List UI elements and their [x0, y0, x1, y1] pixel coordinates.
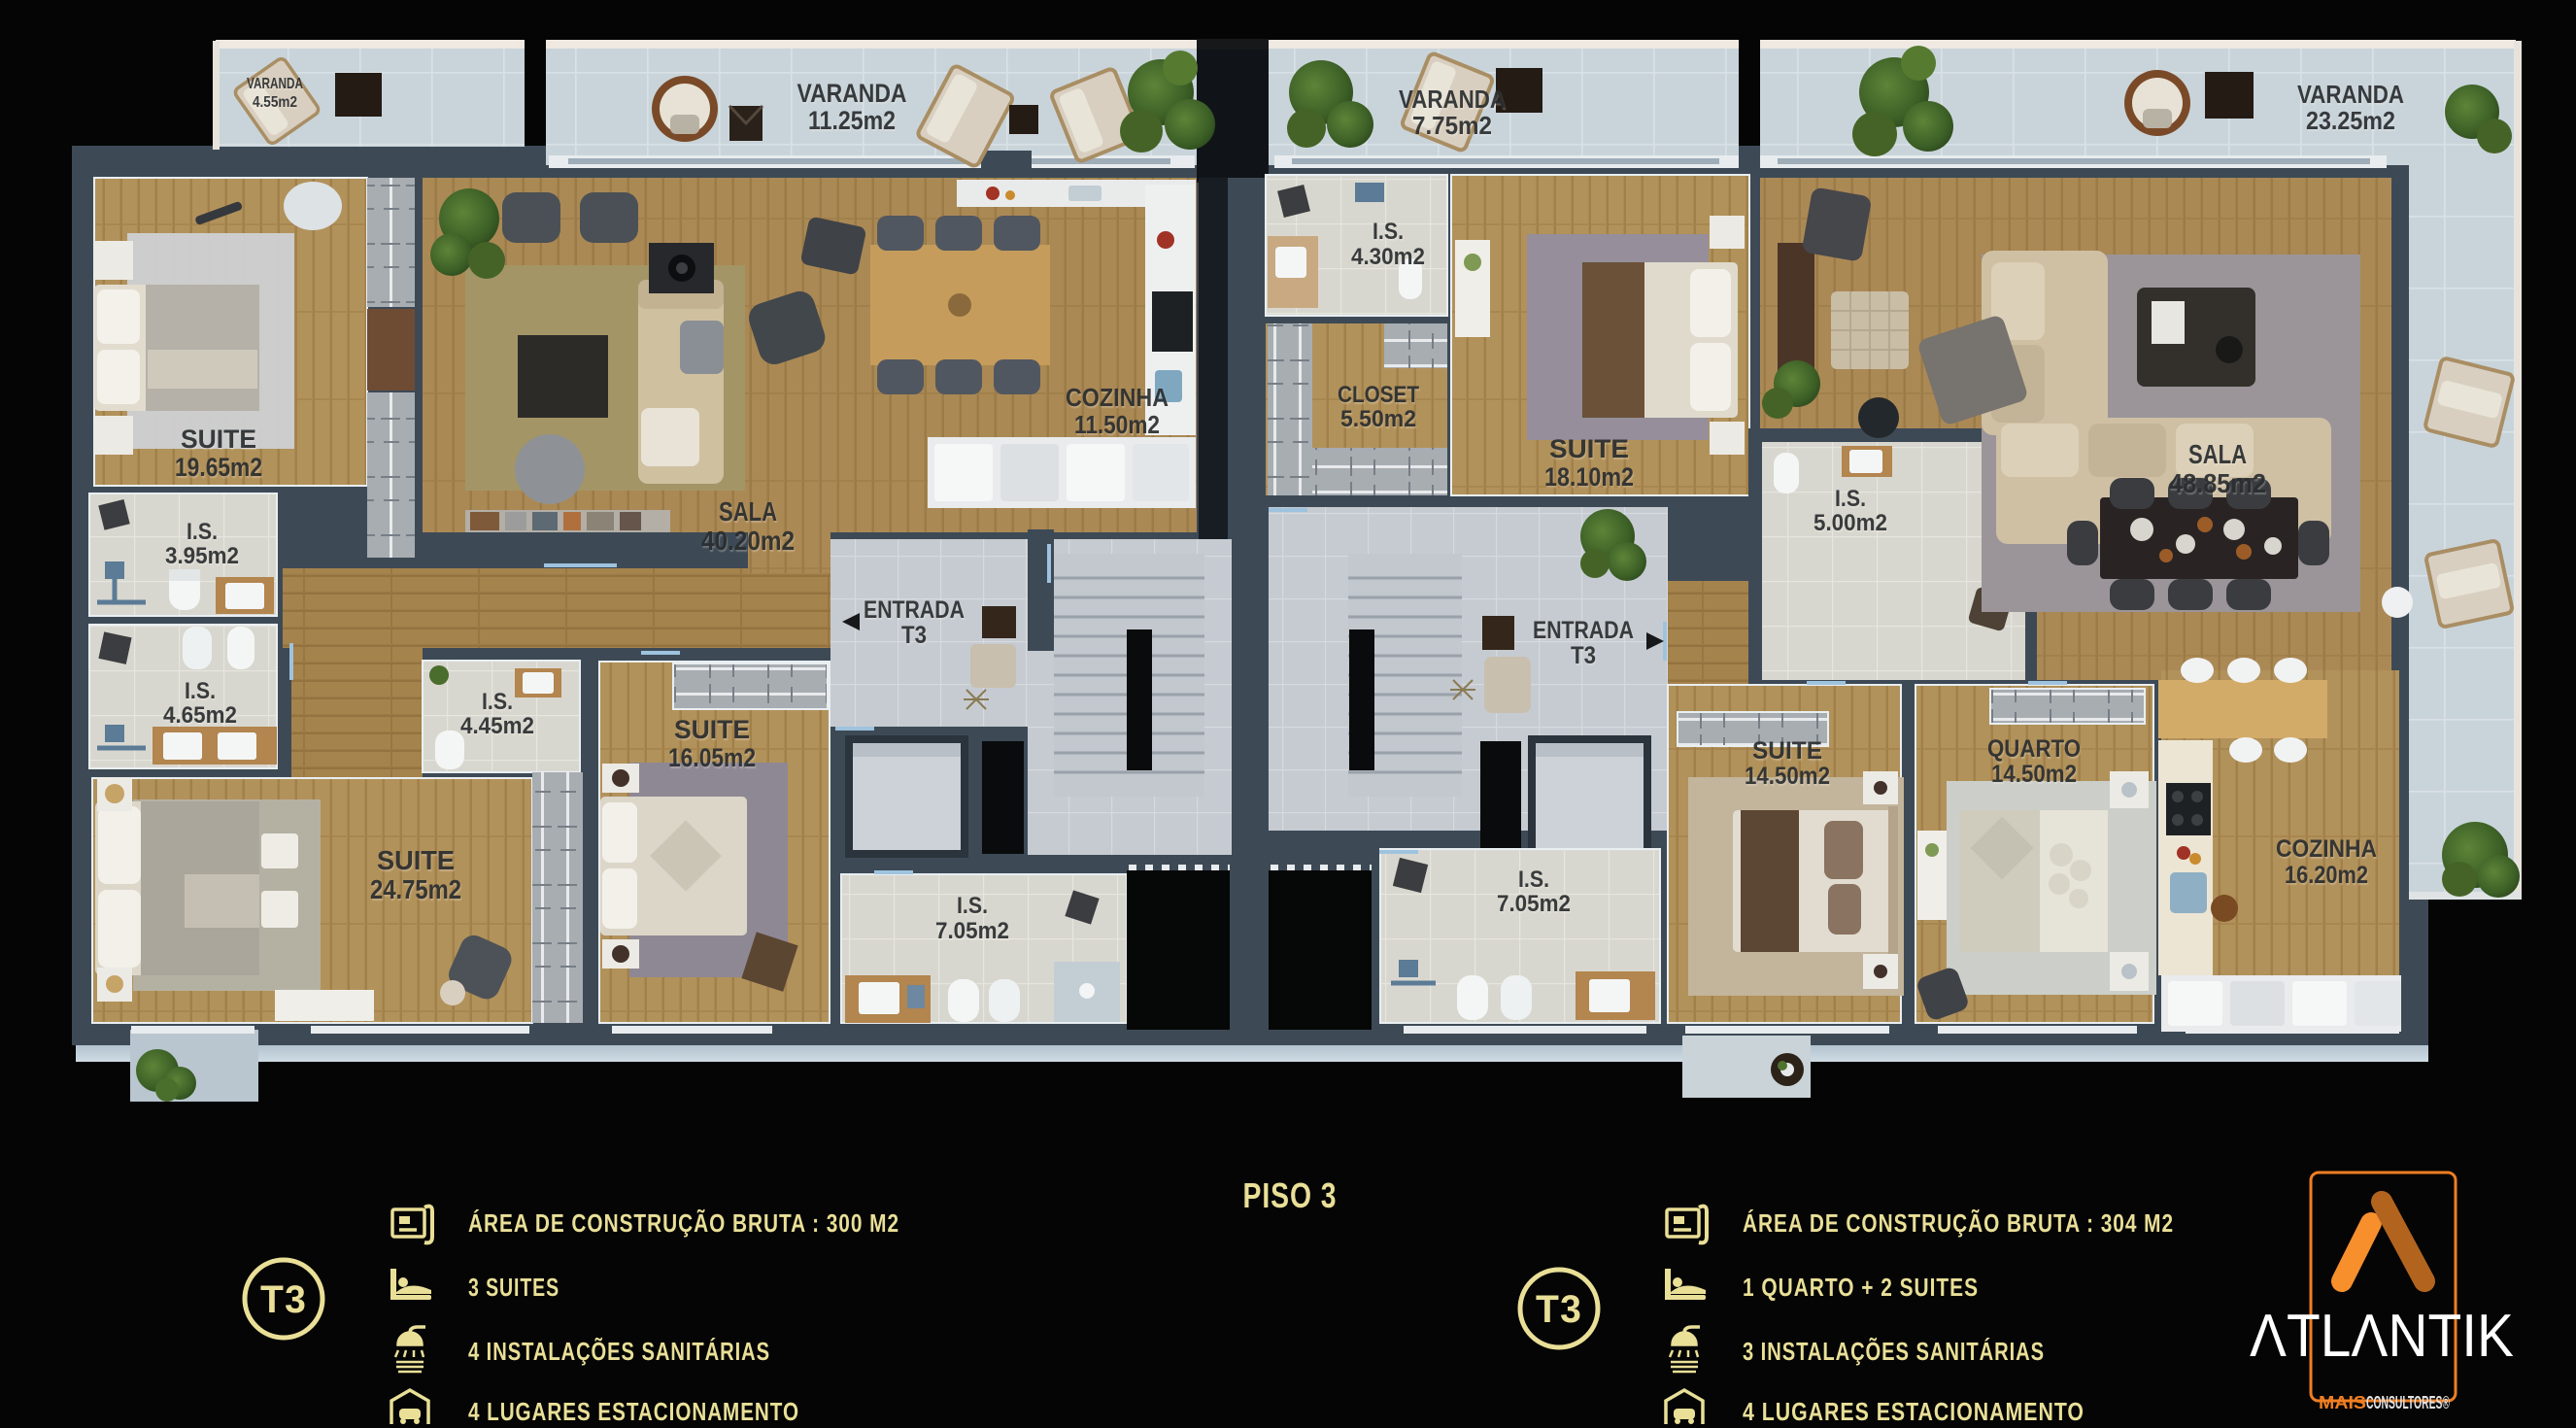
svg-text:SALA: SALA	[2188, 439, 2247, 469]
svg-text:14.50m2: 14.50m2	[1991, 761, 2077, 788]
svg-text:40.20m2: 40.20m2	[701, 526, 795, 556]
svg-text:I.S.: I.S.	[1518, 867, 1549, 893]
svg-text:I.S.: I.S.	[186, 519, 218, 545]
svg-text:4 LUGARES ESTACIONAMENTO: 4 LUGARES ESTACIONAMENTO	[1743, 1397, 2085, 1426]
svg-text:7.05m2: 7.05m2	[1497, 891, 1571, 917]
svg-text:CONSULTORES®: CONSULTORES®	[2366, 1393, 2450, 1412]
svg-text:18.10m2: 18.10m2	[1544, 462, 1634, 492]
svg-text:T3: T3	[1571, 642, 1596, 669]
svg-text:3 INSTALAÇÕES SANITÁRIAS: 3 INSTALAÇÕES SANITÁRIAS	[1743, 1337, 2045, 1366]
svg-text:T3: T3	[1536, 1288, 1582, 1331]
svg-text:I.S.: I.S.	[1373, 219, 1404, 245]
svg-text:COZINHA: COZINHA	[2276, 835, 2377, 863]
svg-text:4.65m2: 4.65m2	[163, 702, 237, 729]
svg-text:VARANDA: VARANDA	[797, 79, 907, 108]
svg-text:48.85m2: 48.85m2	[2169, 468, 2266, 498]
svg-text:4.30m2: 4.30m2	[1351, 244, 1425, 270]
svg-text:11.50m2: 11.50m2	[1074, 410, 1160, 439]
svg-text:24.75m2: 24.75m2	[370, 874, 461, 904]
svg-text:ÁREA DE CONSTRUÇÃO BRUTA : 30: ÁREA DE CONSTRUÇÃO BRUTA : 304 M2	[1743, 1208, 2174, 1238]
svg-text:VARANDA: VARANDA	[2297, 80, 2404, 109]
svg-text:4.55m2: 4.55m2	[253, 94, 297, 111]
svg-text:SALA: SALA	[719, 496, 777, 527]
svg-text:VARANDA: VARANDA	[1399, 85, 1506, 114]
svg-text:QUARTO: QUARTO	[1987, 735, 2081, 763]
svg-text:1 QUARTO + 2 SUITES: 1 QUARTO + 2 SUITES	[1743, 1273, 1979, 1302]
svg-text:MAIS: MAIS	[2319, 1393, 2366, 1412]
svg-text:I.S.: I.S.	[482, 689, 513, 715]
svg-text:CLOSET: CLOSET	[1338, 382, 1419, 408]
svg-text:3.95m2: 3.95m2	[165, 543, 239, 569]
svg-text:SUITE: SUITE	[1549, 434, 1629, 463]
svg-text:COZINHA: COZINHA	[1066, 383, 1169, 412]
svg-text:SUITE: SUITE	[1752, 737, 1822, 765]
svg-text:3 SUITES: 3 SUITES	[468, 1273, 559, 1302]
svg-text:23.25m2: 23.25m2	[2306, 106, 2395, 135]
svg-text:ENTRADA: ENTRADA	[1533, 617, 1634, 644]
svg-text:5.00m2: 5.00m2	[1813, 510, 1887, 536]
svg-text:19.65m2: 19.65m2	[175, 453, 262, 482]
svg-text:ÁREA DE CONSTRUÇÃO BRUTA : 30: ÁREA DE CONSTRUÇÃO BRUTA : 300 M2	[468, 1208, 899, 1238]
svg-text:I.S.: I.S.	[1835, 486, 1866, 512]
svg-text:16.05m2: 16.05m2	[668, 743, 756, 772]
svg-text:14.50m2: 14.50m2	[1745, 763, 1830, 790]
svg-text:T3: T3	[901, 622, 927, 649]
svg-text:I.S.: I.S.	[185, 678, 216, 704]
svg-text:4 INSTALAÇÕES SANITÁRIAS: 4 INSTALAÇÕES SANITÁRIAS	[468, 1337, 770, 1366]
svg-text:7.05m2: 7.05m2	[935, 918, 1009, 944]
svg-text:PISO 3: PISO 3	[1243, 1175, 1338, 1215]
svg-text:SUITE: SUITE	[674, 715, 750, 744]
svg-text:11.25m2: 11.25m2	[808, 106, 896, 135]
svg-text:SUITE: SUITE	[377, 845, 455, 875]
svg-text:7.75m2: 7.75m2	[1412, 111, 1492, 140]
svg-text:4.45m2: 4.45m2	[460, 713, 534, 739]
svg-text:SUITE: SUITE	[181, 425, 256, 454]
svg-text:T3: T3	[260, 1278, 307, 1321]
svg-text:5.50m2: 5.50m2	[1340, 406, 1416, 432]
svg-text:I.S.: I.S.	[957, 893, 988, 919]
svg-text:ENTRADA: ENTRADA	[864, 596, 965, 624]
svg-text:ΛTLΛNTIK: ΛTLΛNTIK	[2250, 1303, 2514, 1370]
svg-text:VARANDA: VARANDA	[247, 76, 303, 92]
svg-text:16.20m2: 16.20m2	[2285, 862, 2368, 889]
svg-text:4 LUGARES ESTACIONAMENTO: 4 LUGARES ESTACIONAMENTO	[468, 1397, 799, 1426]
